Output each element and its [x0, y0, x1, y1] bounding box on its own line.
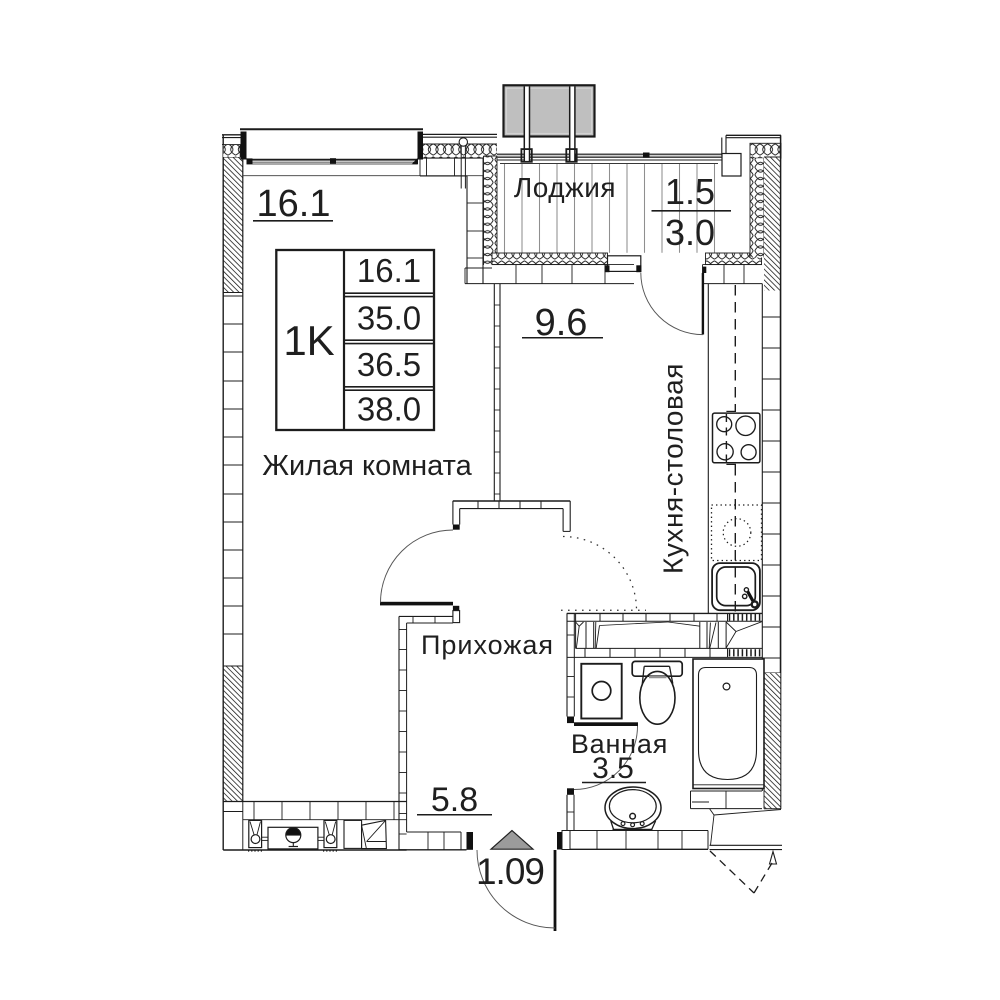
svg-text:3.0: 3.0 — [665, 212, 715, 253]
svg-text:36.5: 36.5 — [357, 346, 421, 383]
svg-text:35.0: 35.0 — [357, 300, 421, 337]
svg-text:3.5: 3.5 — [592, 752, 634, 785]
svg-text:Прихожая: Прихожая — [421, 630, 554, 660]
svg-text:1.09: 1.09 — [476, 851, 544, 892]
svg-text:1K: 1K — [283, 317, 334, 364]
svg-text:Лоджия: Лоджия — [514, 172, 616, 203]
svg-text:5.8: 5.8 — [431, 781, 478, 819]
svg-text:38.0: 38.0 — [357, 391, 421, 428]
svg-text:16.1: 16.1 — [257, 183, 331, 225]
svg-text:16.1: 16.1 — [357, 252, 421, 289]
svg-text:Жилая комната: Жилая комната — [262, 450, 472, 482]
svg-text:1.5: 1.5 — [665, 171, 715, 212]
svg-text:Кухня-столовая: Кухня-столовая — [658, 363, 689, 574]
